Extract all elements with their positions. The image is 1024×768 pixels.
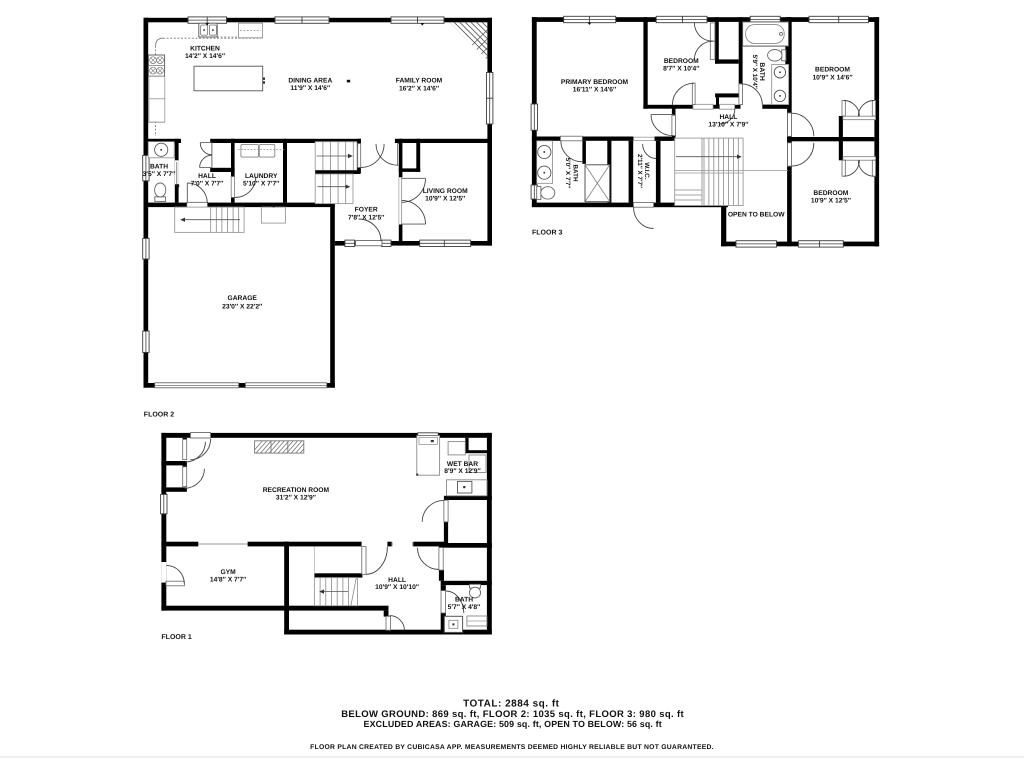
svg-text:10′9″ X 12′5″: 10′9″ X 12′5″: [425, 196, 466, 203]
svg-text:11′9″ X 14′6″: 11′9″ X 14′6″: [290, 85, 331, 92]
svg-text:LIVING ROOM: LIVING ROOM: [423, 188, 468, 195]
svg-text:FLOOR 2: FLOOR 2: [144, 411, 174, 418]
svg-text:31′2″ X 12′9″: 31′2″ X 12′9″: [276, 495, 317, 502]
svg-text:23′0″ X 22′2″: 23′0″ X 22′2″: [222, 304, 263, 311]
svg-text:5′9″ X 10′4″: 5′9″ X 10′4″: [751, 54, 758, 88]
svg-text:7′8″ X 12′5″: 7′8″ X 12′5″: [348, 215, 385, 222]
svg-text:HALL: HALL: [388, 577, 406, 584]
svg-text:OPEN TO BELOW: OPEN TO BELOW: [728, 212, 785, 219]
svg-text:GARAGE: GARAGE: [228, 295, 258, 302]
svg-text:BATH: BATH: [150, 163, 168, 170]
svg-text:5′7″ X 4′8″: 5′7″ X 4′8″: [448, 604, 481, 611]
svg-text:2′11″ X 7′7″: 2′11″ X 7′7″: [636, 154, 643, 188]
svg-text:LAUNDRY: LAUNDRY: [245, 173, 278, 180]
svg-text:5′0″ X 7′7″: 5′0″ X 7′7″: [564, 158, 571, 189]
svg-text:BATH: BATH: [455, 597, 473, 604]
svg-text:16′11″ X 14′6″: 16′11″ X 14′6″: [573, 87, 617, 94]
svg-text:10′9″ X 12′5″: 10′9″ X 12′5″: [811, 198, 852, 205]
svg-text:FLOOR PLAN CREATED BY CUBICASA: FLOOR PLAN CREATED BY CUBICASA APP. MEAS…: [310, 744, 714, 751]
svg-text:BEDROOM: BEDROOM: [813, 190, 848, 197]
svg-text:BATH: BATH: [758, 62, 765, 80]
svg-text:FOYER: FOYER: [355, 207, 378, 214]
svg-text:14′2″ X 14′6″: 14′2″ X 14′6″: [185, 53, 226, 60]
svg-text:8′9″ X 12′9″: 8′9″ X 12′9″: [444, 468, 481, 475]
svg-text:BEDROOM: BEDROOM: [815, 67, 850, 74]
svg-text:KITCHEN: KITCHEN: [190, 45, 220, 52]
svg-text:GYM: GYM: [220, 569, 236, 576]
svg-text:10′9″ X 10′10″: 10′9″ X 10′10″: [375, 584, 420, 591]
svg-text:10′9″ X 14′6″: 10′9″ X 14′6″: [812, 74, 853, 81]
svg-text:W.I.C.: W.I.C.: [643, 162, 650, 179]
svg-text:13′10″ X 7′9″: 13′10″ X 7′9″: [708, 121, 749, 128]
svg-text:3′5″ X 7′7″: 3′5″ X 7′7″: [143, 171, 176, 178]
svg-text:HALL: HALL: [719, 114, 737, 121]
svg-text:8′7″ X 10′4″: 8′7″ X 10′4″: [663, 66, 700, 73]
svg-text:7′0″ X 7′7″: 7′0″ X 7′7″: [191, 180, 224, 187]
svg-text:BATH: BATH: [572, 164, 579, 181]
svg-text:14′8″ X 7′7″: 14′8″ X 7′7″: [210, 577, 247, 584]
svg-text:16′2″ X 14′6″: 16′2″ X 14′6″: [399, 85, 440, 92]
svg-text:PRIMARY BEDROOM: PRIMARY BEDROOM: [561, 79, 629, 86]
svg-text:HALL: HALL: [198, 173, 216, 180]
svg-text:FLOOR 3: FLOOR 3: [532, 229, 562, 236]
svg-text:FAMILY ROOM: FAMILY ROOM: [396, 78, 443, 85]
svg-text:EXCLUDED AREAS: GARAGE: 509 sq: EXCLUDED AREAS: GARAGE: 509 sq. ft, OPEN…: [364, 719, 662, 729]
svg-text:DINING AREA: DINING AREA: [288, 77, 332, 84]
svg-text:BEDROOM: BEDROOM: [664, 58, 699, 65]
svg-text:RECREATION ROOM: RECREATION ROOM: [263, 487, 330, 494]
svg-text:5′10″ X 7′7″: 5′10″ X 7′7″: [243, 180, 280, 187]
svg-text:FLOOR 1: FLOOR 1: [161, 634, 191, 641]
